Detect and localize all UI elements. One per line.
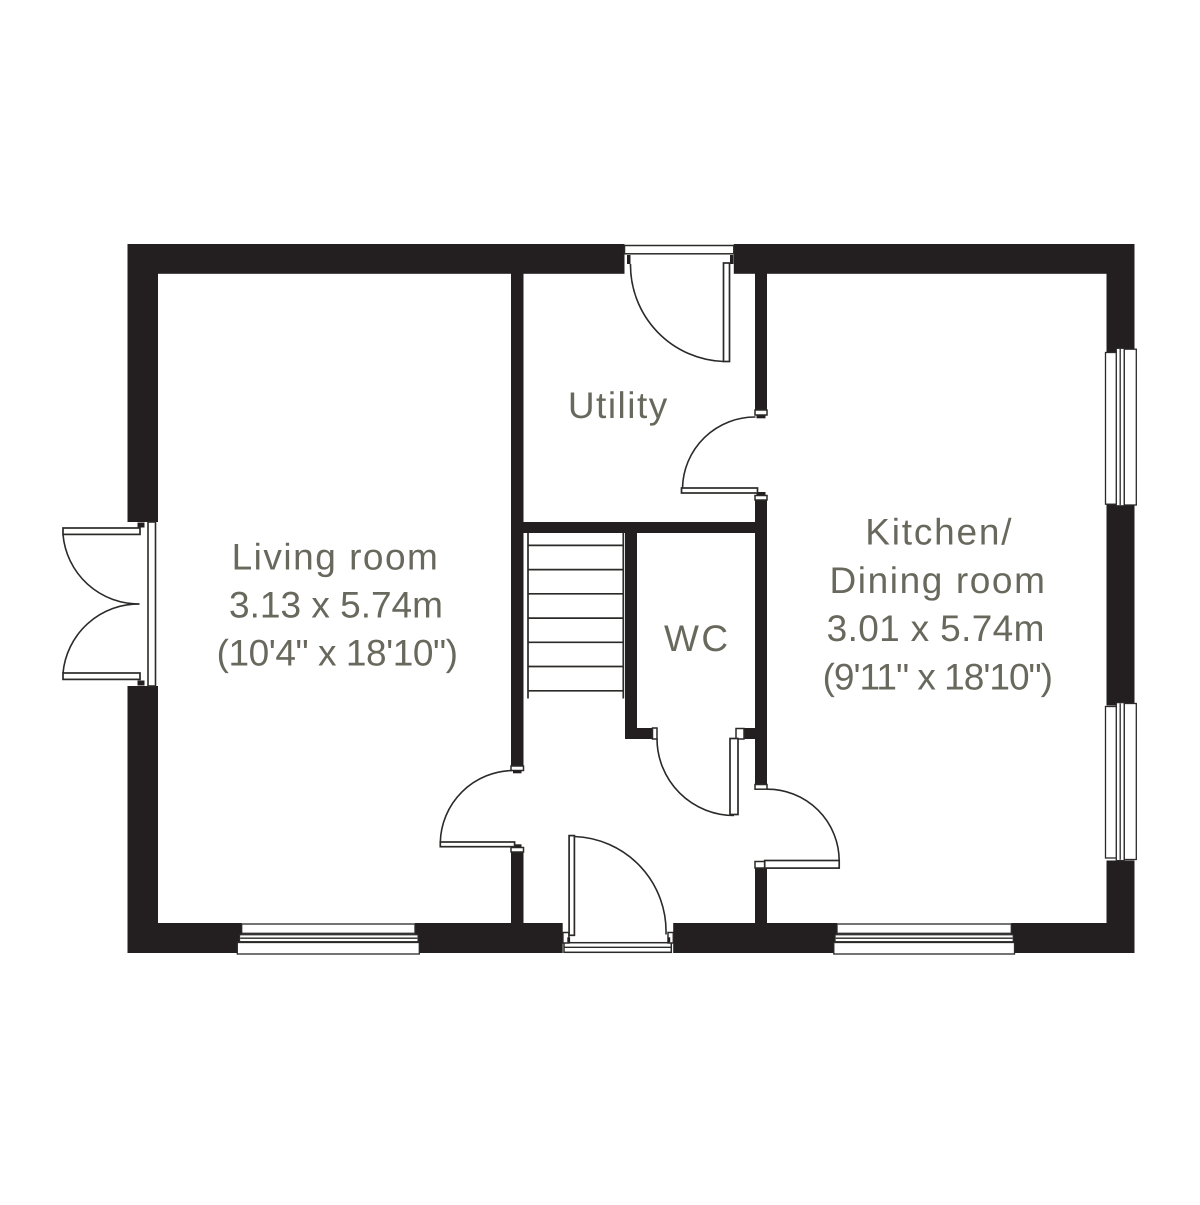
svg-text:Utility: Utility xyxy=(568,385,669,426)
svg-text:3.01 x 5.74m: 3.01 x 5.74m xyxy=(827,608,1045,649)
svg-text:(9'11" x 18'10"): (9'11" x 18'10") xyxy=(823,657,1052,698)
svg-text:Kitchen/: Kitchen/ xyxy=(865,512,1013,553)
svg-text:Dining room: Dining room xyxy=(829,560,1046,601)
svg-text:WC: WC xyxy=(664,618,731,659)
svg-text:Living room: Living room xyxy=(232,537,440,578)
svg-text:(10'4" x 18'10"): (10'4" x 18'10") xyxy=(217,633,458,674)
svg-text:3.13 x 5.74m: 3.13 x 5.74m xyxy=(229,585,443,626)
